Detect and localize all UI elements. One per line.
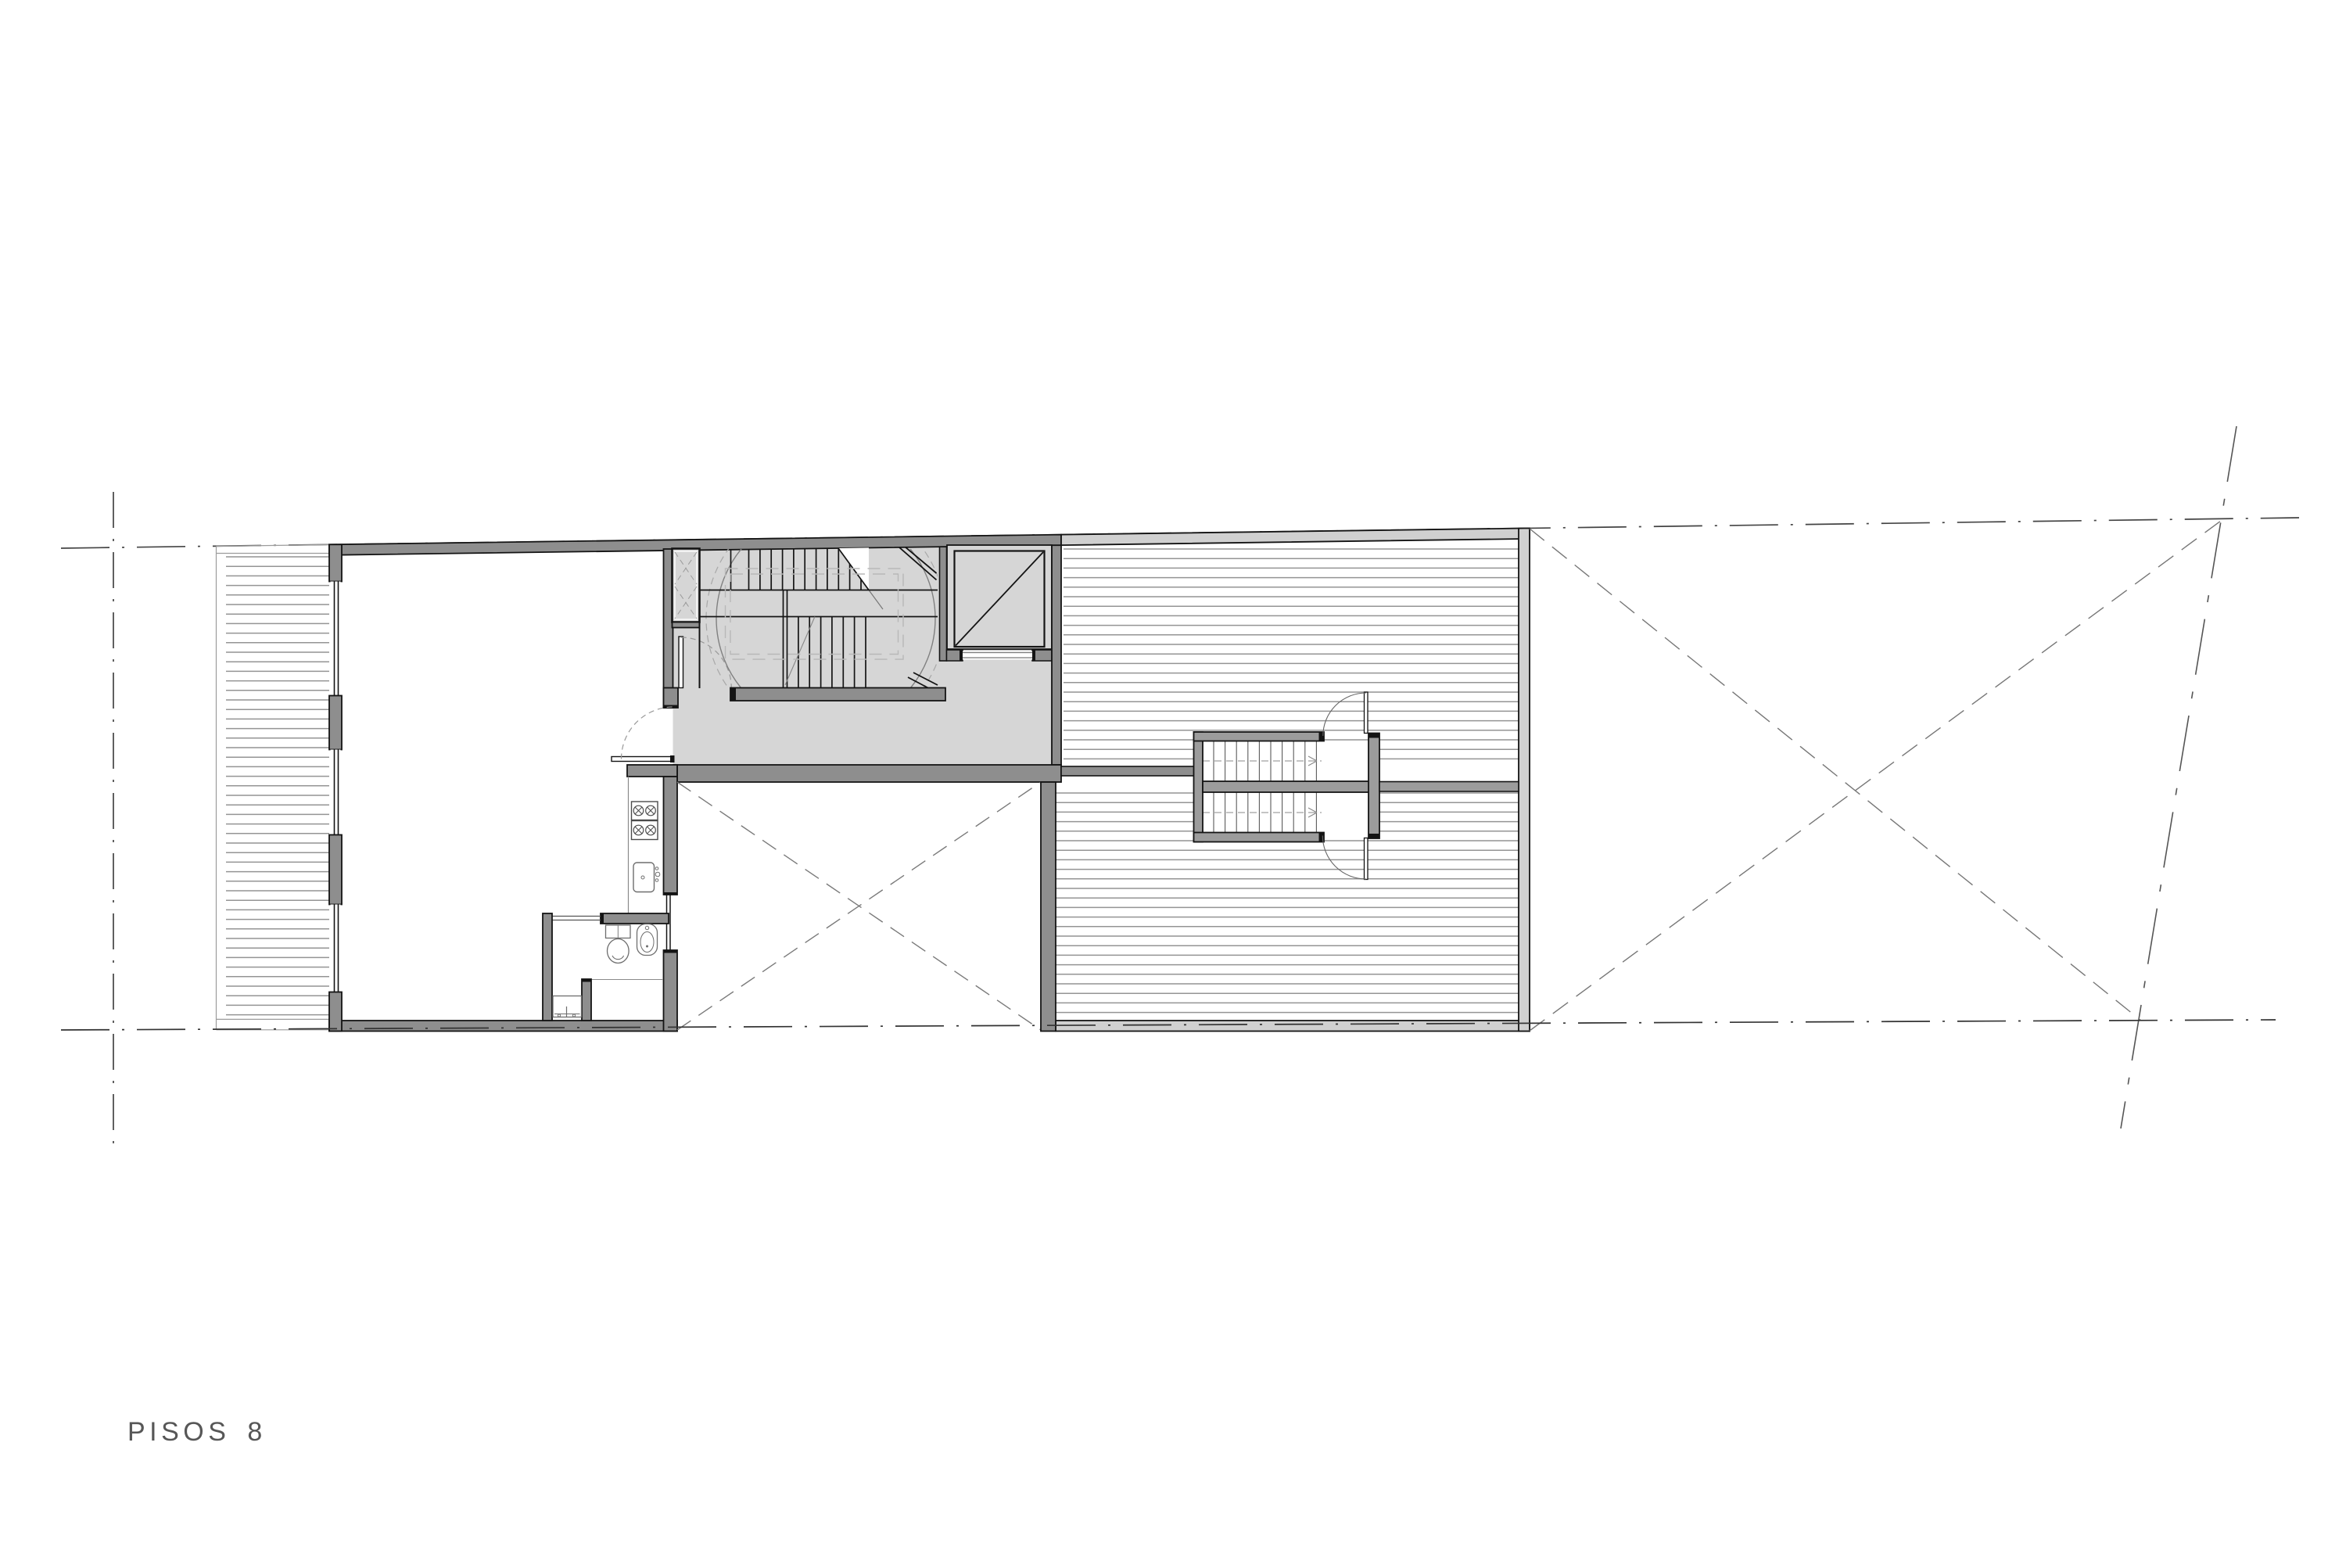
svg-text:PISOS 8: PISOS 8 [127, 1417, 267, 1447]
